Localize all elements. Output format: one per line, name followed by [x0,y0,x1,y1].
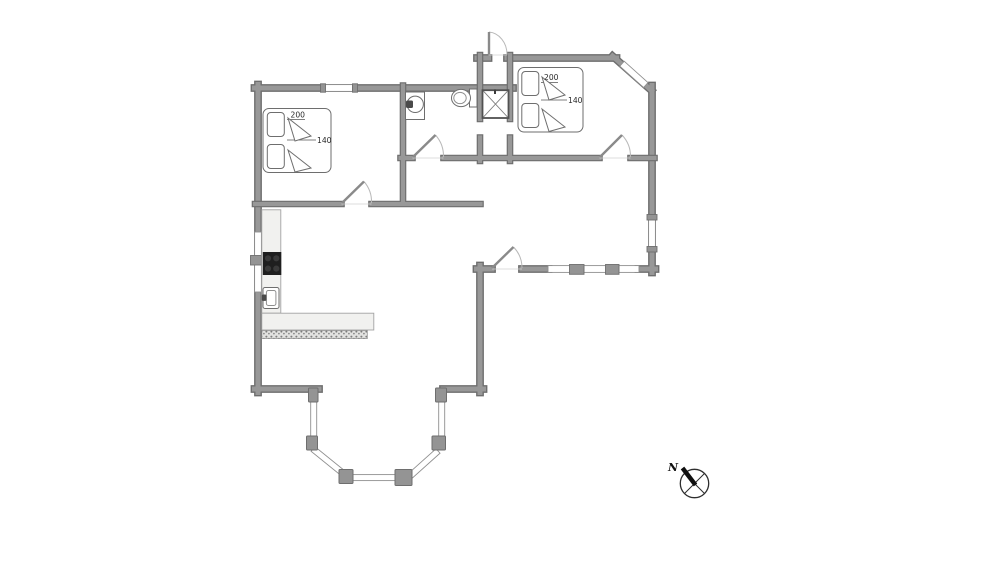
bay-window-posts [307,388,447,486]
bay-glass-left-vertical [311,401,317,437]
bay-glass-bottom [353,475,397,481]
bed-width-label: 140 [568,96,583,105]
floorplan-drawing: 200 140 200 140 N [0,0,1000,562]
bed-length-label: 200 [544,73,559,82]
bay-window [307,388,447,486]
bathroom-fixtures [406,89,509,120]
double-bed-bedroom2: 200 140 [518,68,583,133]
door-terrace [492,247,522,269]
bed-width-label: 140 [317,136,332,145]
kitchen [262,210,374,339]
kitchen-worktop-hatch [262,330,368,338]
washbasin-icon [406,92,425,120]
shower-icon [483,90,509,119]
exterior-walls [255,56,656,393]
window-east-livingroom [647,215,657,253]
pillow [267,113,284,137]
door-bathroom [413,135,444,158]
door-bedroom2 [600,135,631,158]
door-entrance-closet [489,32,508,55]
double-bed-bedroom1: 200 140 [263,109,332,173]
north-label: N [667,461,679,474]
bay-glass-right-vertical [439,401,445,437]
bed-length-label: 200 [291,111,306,120]
doors [342,32,631,269]
pillow [522,72,539,96]
floorplan-page: 200 140 200 140 N [0,0,1000,562]
door-bedroom1 [342,182,372,205]
pillow [522,104,539,128]
compass-icon: N [667,461,709,498]
window-west-kitchen [251,232,262,292]
window-north-bedroom1 [321,84,358,92]
window-band-south [548,265,639,275]
kitchen-sink-icon [262,288,279,309]
toilet-icon [452,89,478,107]
cooktop-icon [263,252,282,275]
pillow [267,145,284,169]
window-chamfer-corner [620,61,648,87]
kitchen-counter-south [262,313,374,330]
